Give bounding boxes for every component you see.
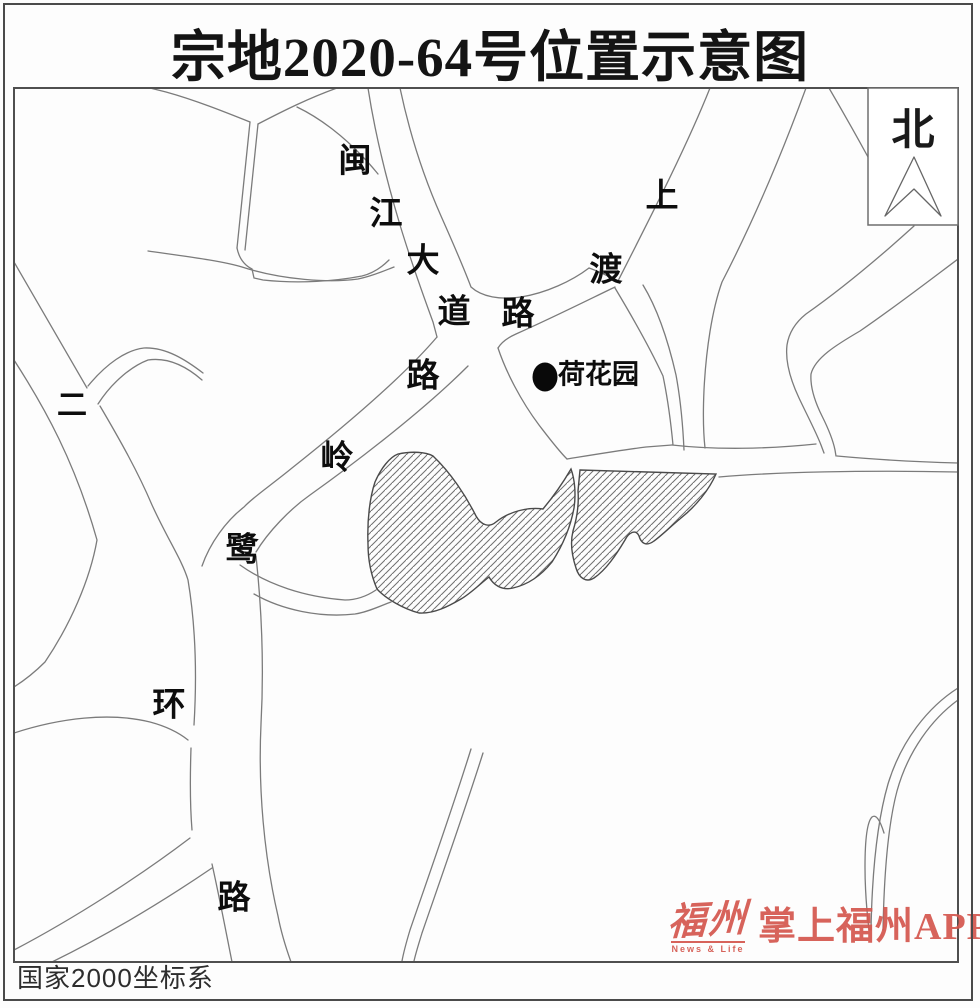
road-label-second-ring-road: 环	[153, 688, 186, 721]
parcel-2020-64	[368, 452, 716, 613]
road-shangdu-east-edge	[703, 88, 806, 448]
watermark-subtitle: News & Life	[672, 944, 745, 954]
road-label-second-ring-road: 路	[218, 881, 251, 914]
lane-left-edge	[237, 122, 250, 248]
road-se-hook-inner	[883, 700, 958, 930]
lane-right-edge	[245, 124, 258, 250]
watermark-brand: 福州	[667, 901, 749, 941]
road-label-minjiang-avenue: 闽	[339, 144, 372, 177]
road-ring-right-edge	[256, 556, 291, 962]
lane-y-right	[258, 88, 337, 124]
road-bottom-narrow-left	[402, 749, 471, 961]
road-corridor-top-east	[837, 456, 958, 463]
road-bottom-narrow-right	[414, 753, 483, 961]
road-label-minjiang-avenue: 道	[438, 295, 471, 328]
road-label-shangdu-road: 渡	[590, 253, 623, 286]
map-canvas	[0, 0, 980, 1008]
road-ne-west-edge	[787, 226, 914, 453]
block-hehua-south-edge	[567, 445, 672, 459]
road-hook-stub-lower	[98, 359, 202, 404]
road-label-second-ring-road: 二	[57, 391, 87, 421]
road-ring-east-edge-b	[100, 406, 196, 725]
road-ne-east-edge	[811, 259, 958, 456]
road-label-luling-road: 鹭	[226, 533, 259, 566]
lane-y-left	[150, 88, 250, 122]
road-corridor-bottom	[719, 471, 958, 477]
road-sw-branch-upper	[14, 838, 190, 950]
parcel-east-lobe	[572, 470, 716, 580]
block-hehua-west-edge	[498, 348, 567, 459]
road-ring-east-edge-a	[14, 262, 87, 388]
road-hook-stub-upper	[88, 348, 203, 386]
watermark-logo: 福州 News & Life	[668, 903, 748, 954]
watermark: 福州 News & Life 掌上福州APP	[668, 903, 980, 954]
road-corridor-top-west	[672, 444, 816, 448]
parcel-location-map: 宗地2020-64号位置示意图 北 闽江大道上渡路路岭鹭二环路 荷花园 国家20…	[0, 0, 980, 1008]
road-label-minjiang-avenue: 江	[370, 197, 403, 230]
road-ne-above-box	[829, 88, 868, 157]
road-label-shangdu-road: 路	[502, 297, 535, 330]
parcel-west-lobe	[368, 452, 575, 613]
page-title: 宗地2020-64号位置示意图	[0, 12, 980, 92]
road-label-luling-road: 路	[407, 359, 440, 392]
poi-dot	[533, 363, 558, 392]
road-label-luling-road: 岭	[321, 441, 354, 474]
watermark-app-name: 掌上福州APP	[758, 908, 980, 954]
road-label-shangdu-road: 上	[646, 179, 679, 212]
ew-road-lower-edge	[148, 251, 394, 281]
north-label: 北	[892, 110, 935, 153]
road-ring-east-edge-c	[190, 748, 192, 830]
road-label-minjiang-avenue: 大	[407, 244, 440, 277]
road-fork-south-east-edge	[643, 285, 684, 450]
road-parcel-stub-upper	[240, 565, 376, 600]
coordinate-system-note: 国家2000坐标系	[17, 963, 214, 994]
poi-label: 荷花园	[558, 362, 639, 389]
